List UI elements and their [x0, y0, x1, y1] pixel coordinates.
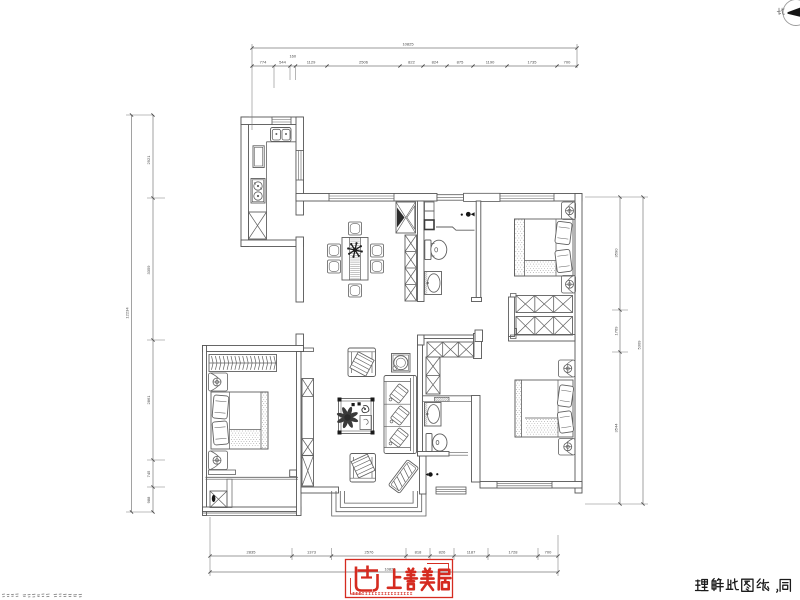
svg-text:818: 818	[415, 550, 422, 555]
svg-text:988: 988	[146, 496, 151, 503]
svg-text:1769: 1769	[614, 326, 619, 336]
svg-text:160: 160	[289, 54, 296, 59]
svg-text:1129: 1129	[307, 60, 316, 65]
svg-text:822: 822	[408, 60, 415, 65]
svg-text:10825: 10825	[402, 42, 414, 47]
svg-text:1187: 1187	[467, 550, 476, 555]
svg-text:1728: 1728	[509, 550, 519, 555]
svg-text:3590: 3590	[614, 248, 619, 258]
svg-text:826: 826	[439, 550, 446, 555]
svg-text:3544: 3544	[614, 423, 619, 433]
svg-text:1190: 1190	[486, 60, 495, 65]
svg-text:2921: 2921	[146, 155, 151, 165]
svg-text:824: 824	[432, 60, 439, 65]
svg-text:2506: 2506	[359, 60, 369, 65]
svg-text:774: 774	[260, 60, 267, 65]
svg-text:544: 544	[279, 60, 286, 65]
svg-text:700: 700	[545, 550, 552, 555]
svg-text:700: 700	[564, 60, 571, 65]
svg-text:5309: 5309	[637, 340, 642, 350]
svg-text:12234: 12234	[125, 307, 130, 319]
svg-text:3359: 3359	[146, 265, 151, 275]
svg-text:875: 875	[457, 60, 464, 65]
svg-text:2835: 2835	[247, 550, 257, 555]
svg-text:1373: 1373	[307, 550, 317, 555]
svg-text:2861: 2861	[146, 395, 151, 405]
svg-text:2576: 2576	[365, 550, 375, 555]
svg-text:745: 745	[146, 470, 151, 477]
svg-text:1735: 1735	[528, 60, 538, 65]
